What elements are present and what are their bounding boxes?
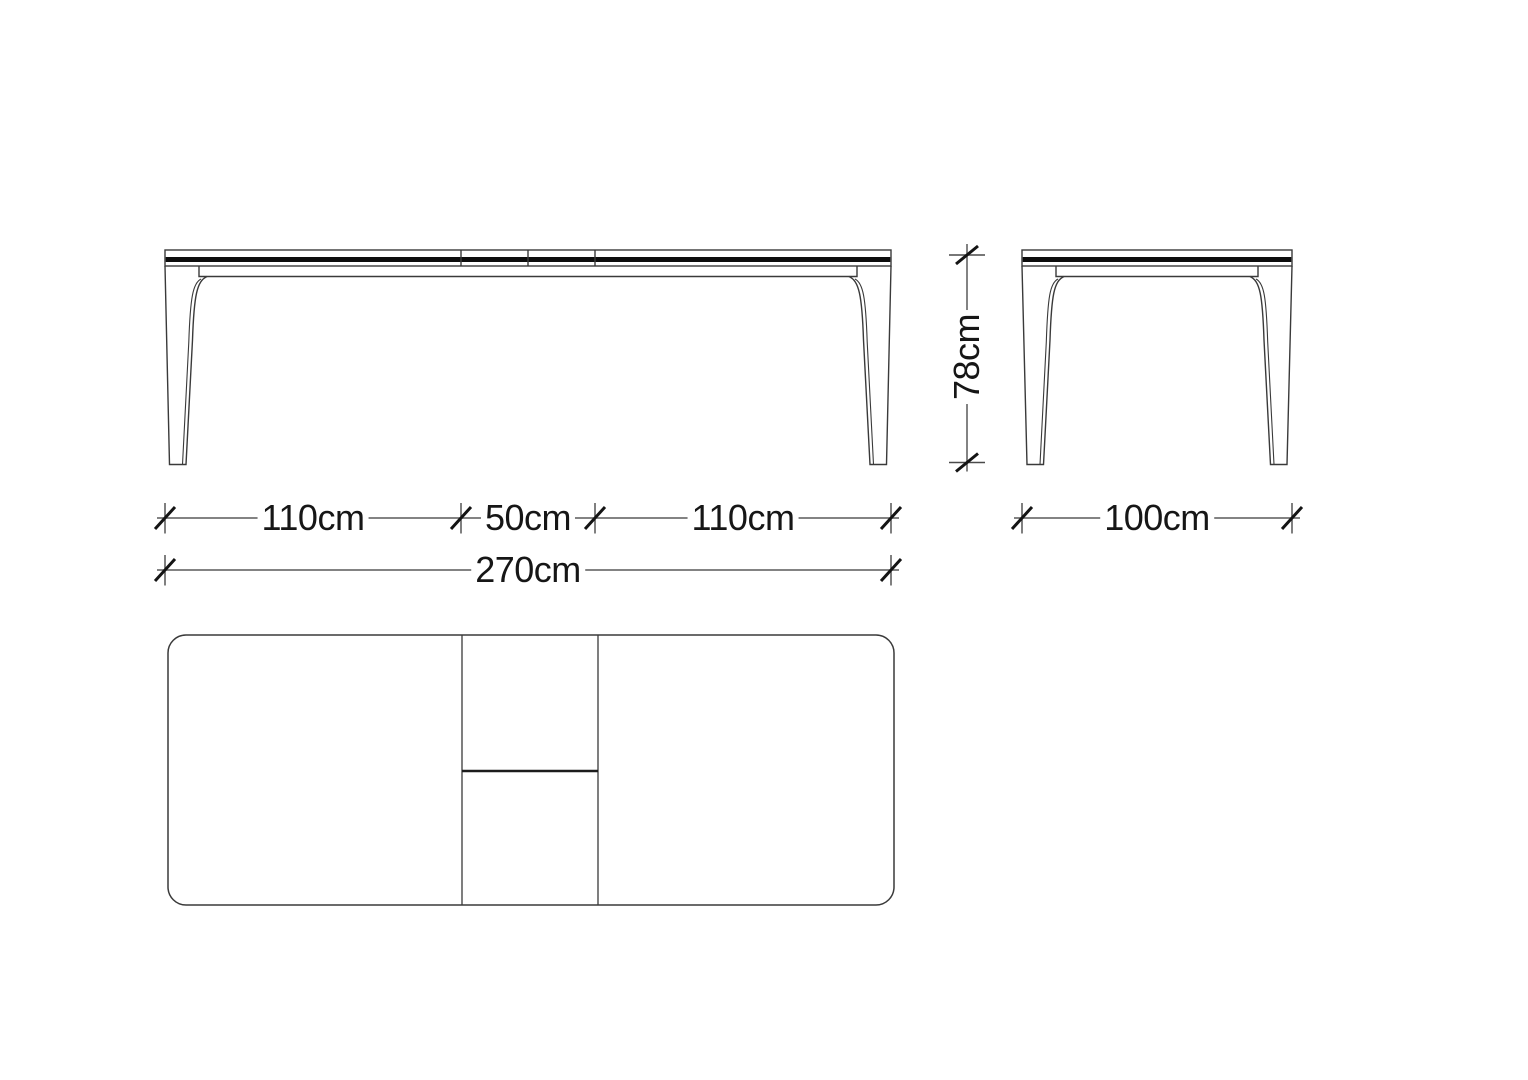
side-view (1022, 250, 1292, 465)
front-right-leg-contour (855, 279, 874, 465)
side-tabletop-edge-band (1023, 257, 1292, 262)
side-apron (1056, 266, 1258, 277)
front-left-leg (165, 266, 207, 465)
dim-label-front-segment-2: 50cm (481, 499, 575, 537)
dim-label-side-width: 100cm (1100, 499, 1214, 537)
front-apron (199, 266, 857, 277)
side-left-leg (1022, 266, 1064, 465)
drawing-sheet: 110cm 50cm 110cm 270cm 100cm 78cm (0, 0, 1528, 1080)
front-left-leg-contour (183, 279, 202, 465)
side-right-leg (1250, 266, 1292, 465)
front-view (165, 250, 891, 465)
dim-label-front-segment-1: 110cm (258, 499, 369, 537)
dim-label-front-segment-3: 110cm (688, 499, 799, 537)
technical-drawing-canvas (0, 0, 1528, 1080)
plan-view (168, 635, 894, 905)
dim-label-front-total: 270cm (471, 551, 585, 589)
front-right-leg (849, 266, 891, 465)
dim-label-height: 78cm (948, 310, 986, 404)
